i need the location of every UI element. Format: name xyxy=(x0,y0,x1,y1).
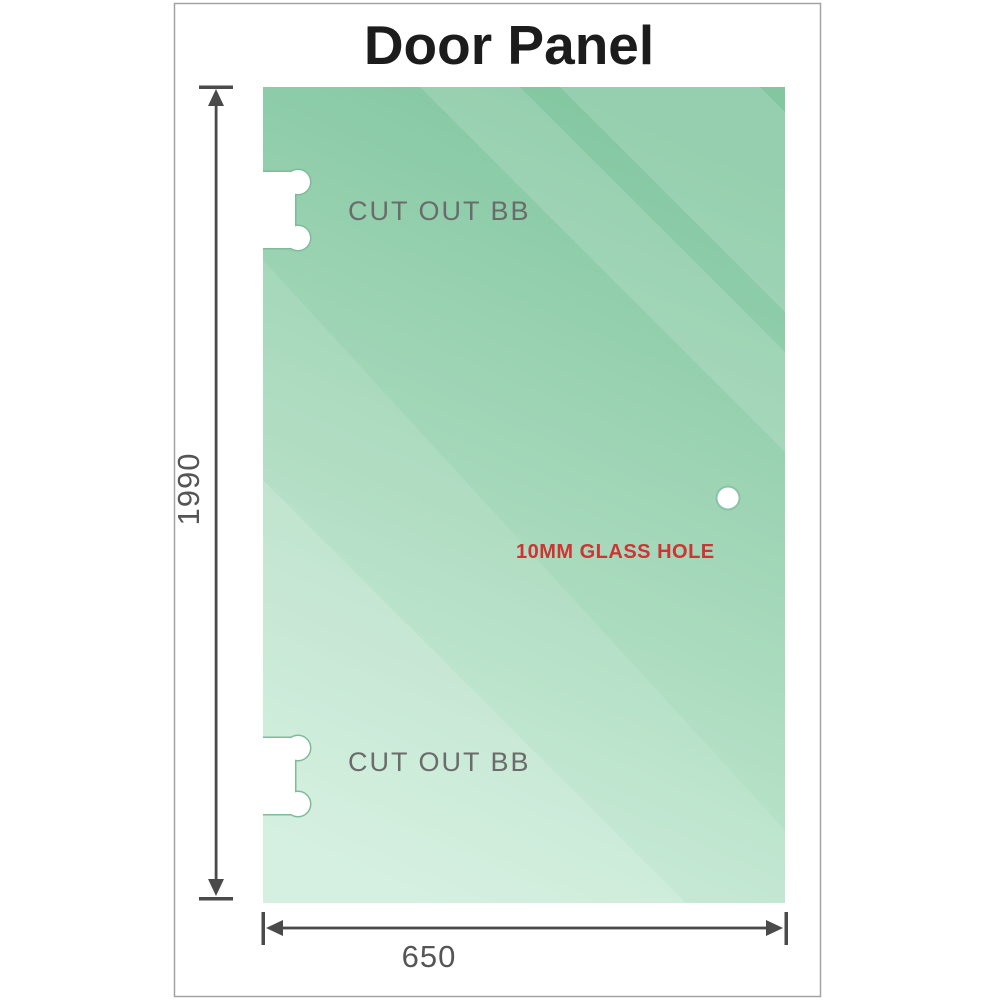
diagram-title: Door Panel xyxy=(364,14,654,76)
height-dimension-label: 1990 xyxy=(171,453,206,526)
dimension-cap xyxy=(199,897,233,901)
dimension-cap xyxy=(785,912,789,945)
width-dimension-label: 650 xyxy=(402,939,457,974)
door-panel-diagram: Door Panel xyxy=(0,0,1000,1000)
dimension-cap xyxy=(262,912,266,945)
dimension-cap xyxy=(199,86,233,90)
cutout-label-top: CUT OUT BB xyxy=(348,196,531,226)
glass-hole xyxy=(717,487,740,510)
glass-hole-label: 10MM GLASS HOLE xyxy=(516,541,715,563)
dimension-line xyxy=(215,100,218,886)
dimension-line xyxy=(276,927,773,930)
cutout-label-bottom: CUT OUT BB xyxy=(348,747,531,777)
